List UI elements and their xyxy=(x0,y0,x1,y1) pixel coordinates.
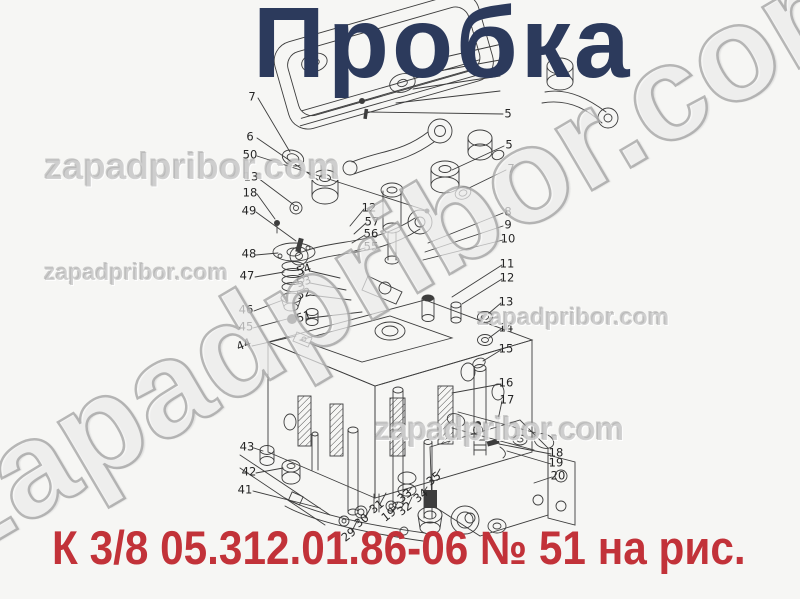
watermark-text: zapadpribor.com xyxy=(374,410,623,448)
watermark-text: zapadpribor.com xyxy=(477,304,669,332)
image-caption: К 3/8 05.312.01.86-06 № 51 на рис. xyxy=(52,520,746,575)
page-title: Пробка xyxy=(253,0,632,101)
product-image: 7650131849484746454443424112575655545352… xyxy=(0,0,800,599)
watermark-text: zapadpribor.com xyxy=(44,146,340,188)
cover-pin xyxy=(363,109,368,119)
